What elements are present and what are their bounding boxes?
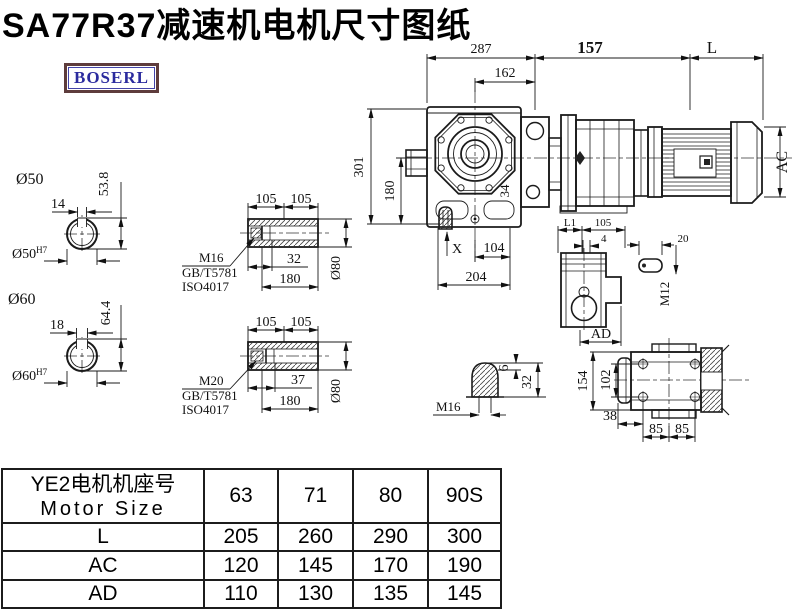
- plug-thread: M16: [436, 399, 461, 414]
- sleeve2-dim-depth: 37: [291, 373, 305, 388]
- dim-287: 287: [471, 42, 492, 57]
- cell-AD-63: 110: [204, 580, 278, 608]
- dim-301: 301: [352, 157, 367, 178]
- sleeve1-dia: Ø80: [329, 256, 344, 280]
- cell-L-63: 205: [204, 523, 278, 551]
- motor-size-table: YE2电机机座号 Motor Size 63 71 80 90S L 205 2…: [1, 468, 502, 609]
- sleeve1-std-gb: GB/T5781: [182, 265, 238, 280]
- cell-L-71: 260: [278, 523, 353, 551]
- sleeve2-dim-length: 180: [280, 394, 301, 409]
- shaft-section-50: [44, 182, 127, 265]
- shaft50-bore-label: Ø50H7: [12, 245, 48, 262]
- sleeve2-std-gb: GB/T5781: [182, 388, 238, 403]
- cell-AC-80: 170: [353, 551, 428, 580]
- plug-dim-32: 32: [520, 375, 535, 389]
- shaft50-key-width: 14: [51, 197, 65, 212]
- shaft60-key-width: 18: [50, 318, 64, 333]
- dim-AC: AC: [774, 151, 791, 173]
- col-63: 63: [204, 469, 278, 523]
- dim-154: 154: [576, 371, 591, 392]
- sleeve1-thread: M16: [199, 250, 224, 265]
- oil-plug: [439, 207, 452, 229]
- dim-85b: 85: [675, 422, 689, 437]
- sleeve1-dim-105b: 105: [291, 192, 312, 207]
- dim-4: 4: [601, 233, 607, 245]
- sleeve1-dim-depth: 32: [287, 252, 301, 267]
- row-label-AD: AD: [2, 580, 204, 608]
- table-header-row: YE2电机机座号 Motor Size 63 71 80 90S: [2, 469, 501, 523]
- dim-38: 38: [603, 409, 617, 424]
- sleeve1-dim-105a: 105: [256, 192, 277, 207]
- table-row-AD: AD 110 130 135 145: [2, 580, 501, 608]
- key-detail: [627, 241, 676, 274]
- shaft60-title: Ø60: [8, 291, 36, 308]
- col-80: 80: [353, 469, 428, 523]
- dim-104: 104: [484, 241, 505, 256]
- cell-L-80: 290: [353, 523, 428, 551]
- sleeve2-dim-105b: 105: [291, 315, 312, 330]
- sleeve2-dim-105a: 105: [256, 315, 277, 330]
- cell-AC-90s: 190: [428, 551, 501, 580]
- cell-AD-80: 135: [353, 580, 428, 608]
- gearbox-front-view: [406, 107, 549, 229]
- technical-drawing: 34: [0, 0, 800, 468]
- key-thread-m12: M12: [657, 282, 672, 307]
- sleeve2-thread: M20: [199, 373, 224, 388]
- dim-L: L: [707, 38, 717, 57]
- header-motor-size: YE2电机机座号 Motor Size: [2, 469, 204, 523]
- dim-162: 162: [495, 66, 516, 81]
- col-90s: 90S: [428, 469, 501, 523]
- header-motor-size-cn: YE2电机机座号: [3, 472, 203, 497]
- dim-AD: AD: [591, 327, 611, 342]
- table-row-AC: AC 120 145 170 190: [2, 551, 501, 580]
- dim-105-small: 105: [595, 217, 612, 229]
- dim-20: 20: [678, 233, 690, 245]
- dim-85a: 85: [649, 422, 663, 437]
- header-motor-size-en: Motor Size: [3, 497, 203, 521]
- cell-AD-90s: 145: [428, 580, 501, 608]
- dim-180: 180: [383, 181, 398, 202]
- sleeve1-dim-length: 180: [280, 272, 301, 287]
- cell-L-90s: 300: [428, 523, 501, 551]
- cell-AC-71: 145: [278, 551, 353, 580]
- dim-102: 102: [599, 370, 614, 391]
- plug-dim-6: 6: [497, 365, 512, 372]
- sleeve2-std-iso: ISO4017: [182, 402, 229, 417]
- col-71: 71: [278, 469, 353, 523]
- shaft60-bore-label: Ø60H7: [12, 367, 48, 384]
- drawing-page: SA77R37减速机电机尺寸图纸 BOSERL: [0, 0, 800, 613]
- table-row-L: L 205 260 290 300: [2, 523, 501, 551]
- shaft50-title: Ø50: [16, 171, 44, 188]
- centerlines: [64, 90, 792, 428]
- dim-L1: L1: [564, 217, 576, 229]
- row-label-L: L: [2, 523, 204, 551]
- shaft50-key-height: 53.8: [97, 172, 112, 197]
- dim-157: 157: [577, 38, 603, 57]
- cell-AC-63: 120: [204, 551, 278, 580]
- motor-side-view: [549, 115, 762, 213]
- dim-204: 204: [466, 270, 487, 285]
- cell-AD-71: 130: [278, 580, 353, 608]
- sleeve2-dia: Ø80: [329, 379, 344, 403]
- dim-X: X: [452, 242, 462, 257]
- dim-34: 34: [497, 184, 512, 198]
- sleeve1-std-iso: ISO4017: [182, 279, 229, 294]
- shaft60-key-height: 64.4: [99, 301, 114, 326]
- row-label-AC: AC: [2, 551, 204, 580]
